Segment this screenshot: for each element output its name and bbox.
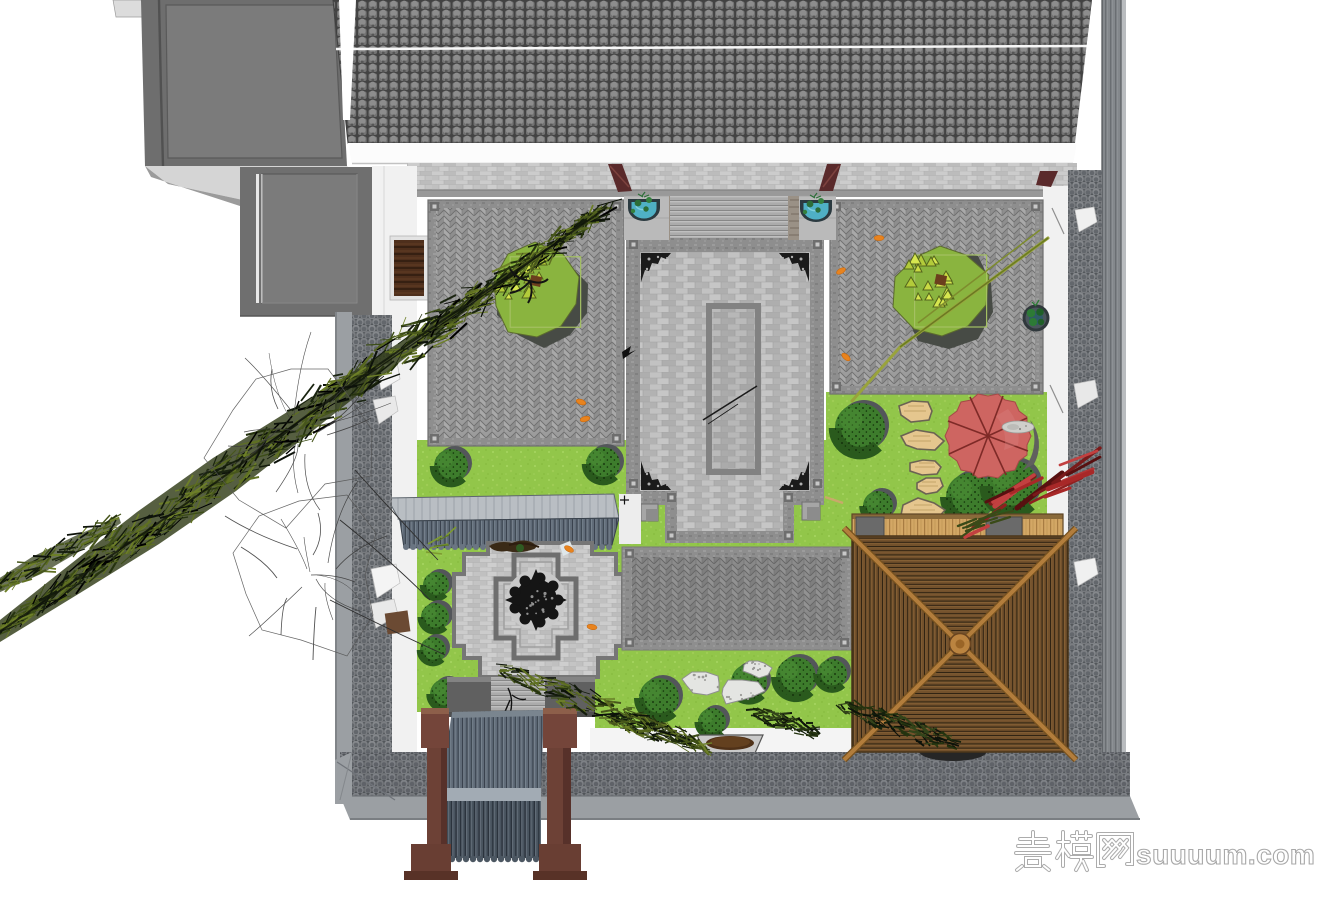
svg-text:suuuum.com: suuuum.com xyxy=(1136,839,1315,870)
